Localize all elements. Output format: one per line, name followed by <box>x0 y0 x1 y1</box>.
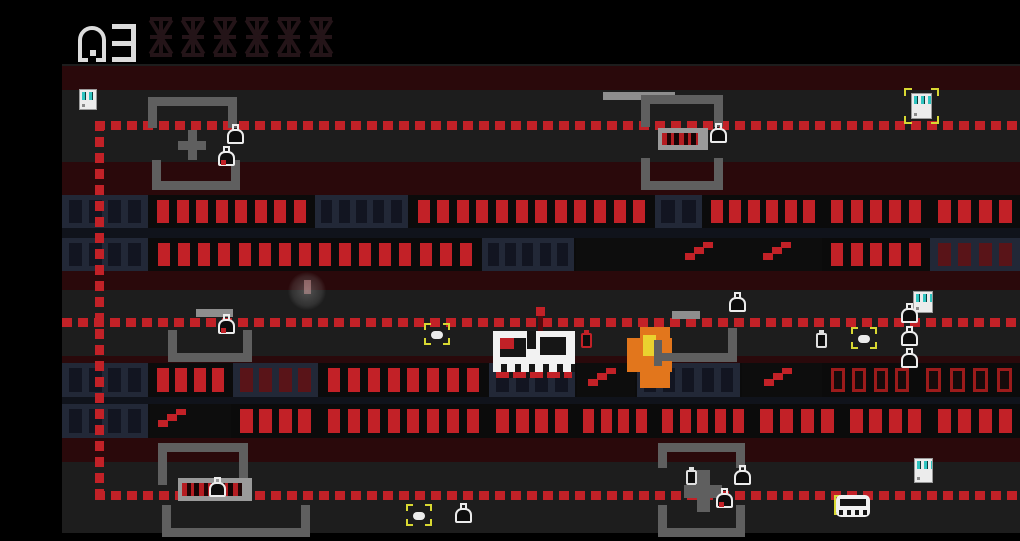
window <box>255 200 267 223</box>
building-segment-outline <box>824 363 916 397</box>
building-segment-lit <box>753 404 841 438</box>
window <box>636 409 647 433</box>
window <box>69 409 82 433</box>
building-segment-unlit <box>62 404 148 438</box>
item-bottle-red <box>581 330 592 348</box>
dashed-border-left <box>95 121 104 500</box>
window <box>851 200 863 223</box>
ghost-figure <box>304 280 311 294</box>
bracket-leg <box>158 443 167 485</box>
window <box>821 409 834 433</box>
bag-body <box>716 493 733 508</box>
stair-steps <box>685 242 713 260</box>
bracket-corner <box>851 327 858 334</box>
window <box>379 243 391 266</box>
window <box>467 368 479 392</box>
window <box>356 200 367 223</box>
window <box>535 409 548 433</box>
ghost-effect <box>288 272 326 310</box>
window <box>766 200 778 223</box>
bag-body <box>901 331 918 346</box>
stair-steps <box>158 409 186 427</box>
bracket-corner <box>870 342 877 349</box>
bracket-leg <box>714 158 723 190</box>
pill-body <box>431 331 443 339</box>
window <box>216 200 228 223</box>
bracket-platform <box>162 505 310 537</box>
bag-body <box>734 470 751 485</box>
window <box>359 243 371 266</box>
fridge-dot <box>82 104 85 107</box>
skull-slot <box>527 331 536 349</box>
item-bag <box>901 303 918 323</box>
bracket-corner <box>931 116 939 124</box>
game-viewport[interactable]: 3 <box>0 0 1020 541</box>
window <box>488 243 499 266</box>
window <box>198 243 210 266</box>
window <box>108 200 121 223</box>
digit-segment <box>112 57 136 62</box>
window <box>391 200 402 223</box>
skull-eye-right <box>540 337 566 355</box>
bracket-corner <box>443 323 450 330</box>
window <box>69 243 82 266</box>
bracket-leg <box>658 443 667 468</box>
window <box>218 243 230 266</box>
bracket-leg <box>152 160 161 190</box>
hud-slot <box>278 17 300 57</box>
window <box>889 200 901 223</box>
window <box>733 409 744 433</box>
window <box>319 243 331 266</box>
window <box>279 243 291 266</box>
window <box>594 200 606 223</box>
window <box>803 200 815 223</box>
window <box>760 409 773 433</box>
item-fridge <box>911 93 932 119</box>
stair-step <box>606 368 616 374</box>
window <box>748 200 760 223</box>
window <box>194 368 206 392</box>
window <box>999 243 1012 266</box>
skull-teeth <box>493 364 575 372</box>
bracket-leg <box>658 505 667 537</box>
item-pill <box>406 504 432 526</box>
window <box>177 200 189 223</box>
window <box>926 368 941 392</box>
building-segment-unlit <box>655 195 702 228</box>
stair-step <box>176 409 186 415</box>
item-bag-red <box>218 314 235 334</box>
window <box>662 409 673 433</box>
player-skull <box>493 331 575 378</box>
item-fridge <box>914 458 933 483</box>
bracket-bar <box>148 97 237 106</box>
building-segment-lit <box>824 195 928 228</box>
window <box>870 200 882 223</box>
bottle-body <box>581 333 592 348</box>
fridge-dot <box>914 113 917 116</box>
window <box>328 368 340 392</box>
window <box>958 409 971 433</box>
window <box>721 368 733 392</box>
stair-step <box>167 414 177 421</box>
ledge-platform <box>672 311 700 319</box>
stair-step <box>158 420 168 427</box>
bracket-corner <box>425 504 432 511</box>
fridge-stripes <box>916 294 932 302</box>
window <box>682 368 694 392</box>
window <box>108 409 121 433</box>
window <box>516 200 528 223</box>
window <box>869 409 882 433</box>
bracket-corner <box>870 327 877 334</box>
building-segment-lit <box>824 238 928 271</box>
building-segment-dim <box>233 363 318 397</box>
bracket-platform <box>641 158 723 190</box>
window <box>801 409 814 433</box>
stair-step <box>773 373 783 380</box>
window <box>440 243 452 266</box>
hud-slot <box>182 17 204 57</box>
window <box>973 368 988 392</box>
window <box>128 409 141 433</box>
window <box>407 409 419 433</box>
building-segment-lit <box>489 404 575 438</box>
item-bag <box>901 348 918 368</box>
building-segment-lit <box>930 404 1020 438</box>
bracket-leg <box>148 97 157 128</box>
hud-slot <box>150 17 172 57</box>
fridge-stripes <box>917 461 932 469</box>
level-digit <box>112 24 136 62</box>
window <box>259 243 271 266</box>
stair-step <box>764 379 774 386</box>
window <box>128 368 141 392</box>
window <box>339 243 351 266</box>
window <box>175 368 187 392</box>
bag-body <box>455 508 472 523</box>
window <box>399 243 411 266</box>
skull-eye-glow <box>500 338 514 349</box>
item-bag-red <box>218 146 235 166</box>
building-segment-lit <box>150 238 480 271</box>
window <box>870 243 882 266</box>
window <box>999 200 1012 223</box>
building-segment-lit <box>577 404 653 438</box>
row-separator-lower <box>62 397 1020 404</box>
window <box>535 200 547 223</box>
building-segment-lit <box>150 195 313 228</box>
projectile-trail <box>538 316 543 332</box>
item-fridge <box>79 89 97 110</box>
stair-step <box>588 379 598 386</box>
row-separator-upper <box>62 228 1020 238</box>
digit-segment <box>112 41 136 46</box>
cross-horizontal <box>178 141 206 150</box>
window <box>259 409 272 433</box>
bag-body <box>218 151 235 166</box>
bag-body <box>729 297 746 312</box>
window <box>555 200 567 223</box>
window <box>418 200 430 223</box>
window <box>321 200 332 223</box>
bracket-platform <box>148 97 237 128</box>
bag-body <box>209 482 226 497</box>
window <box>729 200 741 223</box>
window <box>540 243 551 266</box>
window <box>259 368 272 392</box>
window <box>348 409 360 433</box>
window <box>938 200 951 223</box>
window <box>979 200 992 223</box>
bracket-leg <box>301 505 310 537</box>
bracket-corner <box>851 342 858 349</box>
window <box>388 368 400 392</box>
window <box>618 409 629 433</box>
window <box>368 368 380 392</box>
hud-slot <box>246 17 268 57</box>
item-pill <box>851 327 877 349</box>
projectile <box>536 307 545 316</box>
building-segment-unlit <box>62 363 148 397</box>
bracket-corner <box>443 338 450 345</box>
bracket-corner <box>406 519 413 526</box>
window <box>909 243 921 266</box>
window <box>420 243 432 266</box>
window <box>108 243 121 266</box>
building-segment-lit <box>320 404 487 438</box>
bracket-leg <box>243 330 252 362</box>
bag-body <box>227 129 244 144</box>
window <box>279 409 292 433</box>
window <box>157 200 169 223</box>
window <box>999 409 1012 433</box>
building-segment-unlit <box>482 238 574 271</box>
window <box>212 368 224 392</box>
sign-text <box>662 133 698 145</box>
bracket-platform <box>658 443 745 468</box>
building-segment-lit <box>320 363 487 397</box>
bracket-corner <box>424 323 431 330</box>
window <box>874 368 888 392</box>
pill-body <box>858 335 870 343</box>
window <box>505 243 516 266</box>
window <box>457 200 469 223</box>
window <box>702 368 714 392</box>
bracket-corner <box>931 88 939 96</box>
window <box>274 200 286 223</box>
stair-step <box>763 253 773 260</box>
window <box>69 200 82 223</box>
item-bag <box>455 503 472 523</box>
window <box>339 200 350 223</box>
window <box>950 368 965 392</box>
window <box>328 409 340 433</box>
window <box>240 409 253 433</box>
window <box>938 243 951 266</box>
window <box>997 368 1012 392</box>
window <box>128 200 141 223</box>
window <box>661 200 675 223</box>
item-bag <box>729 292 746 312</box>
flame-pipe <box>654 353 699 361</box>
stair-step <box>597 373 607 380</box>
stair-step <box>782 368 792 374</box>
window <box>178 243 190 266</box>
window <box>682 200 696 223</box>
item-bag <box>710 123 727 143</box>
bracket-corner <box>424 338 431 345</box>
building-segment-lit <box>704 195 822 228</box>
window <box>958 200 971 223</box>
window <box>711 200 723 223</box>
bracket-bar <box>658 528 745 537</box>
window <box>516 409 529 433</box>
maroon-band-3 <box>62 271 1020 290</box>
bracket-bar <box>158 443 248 452</box>
window <box>496 200 508 223</box>
window <box>460 243 472 266</box>
stair-step <box>685 253 695 260</box>
window <box>831 200 843 223</box>
pill-body <box>413 512 425 520</box>
item-bag <box>209 477 226 497</box>
bag-red-dot <box>221 160 226 165</box>
item-bag <box>227 124 244 144</box>
bracket-bar <box>658 443 745 452</box>
window <box>851 243 863 266</box>
window <box>476 200 488 223</box>
stair-step <box>772 247 782 254</box>
window <box>909 200 921 223</box>
car-window <box>840 499 866 506</box>
bracket-bar <box>162 528 310 537</box>
bracket-bar <box>168 353 252 362</box>
window <box>239 243 251 266</box>
skull-chin <box>496 372 572 378</box>
fridge-dot <box>917 477 920 480</box>
window <box>574 200 586 223</box>
building-segment-unlit <box>315 195 408 228</box>
window <box>235 200 247 223</box>
window <box>958 243 971 266</box>
window <box>785 200 797 223</box>
bracket-platform <box>168 330 252 362</box>
window <box>889 243 901 266</box>
item-car <box>834 493 870 518</box>
window <box>388 409 400 433</box>
window <box>633 200 645 223</box>
window <box>908 409 921 433</box>
window <box>294 200 306 223</box>
stair-step <box>703 242 713 248</box>
window <box>601 409 612 433</box>
window <box>447 368 459 392</box>
item-bag <box>734 465 751 485</box>
stair-steps <box>764 368 792 386</box>
bracket-corner <box>406 504 413 511</box>
building-segment-lit <box>410 195 653 228</box>
bag-body <box>218 319 235 334</box>
window <box>240 368 253 392</box>
window <box>850 409 863 433</box>
window <box>614 200 626 223</box>
window <box>368 409 380 433</box>
window <box>196 200 208 223</box>
window <box>496 409 509 433</box>
window <box>108 368 121 392</box>
sign-board <box>658 128 708 150</box>
window <box>69 368 82 392</box>
window <box>407 368 419 392</box>
window <box>780 409 793 433</box>
window <box>680 409 691 433</box>
car-treads <box>839 510 867 515</box>
bag-body <box>901 353 918 368</box>
window <box>522 243 533 266</box>
window <box>279 368 292 392</box>
bracket-leg <box>168 330 177 362</box>
window <box>557 243 568 266</box>
door-notch <box>90 50 96 56</box>
bag-red-dot <box>221 328 226 333</box>
bracket-corner <box>425 519 432 526</box>
window <box>298 368 311 392</box>
window <box>427 409 439 433</box>
hud-slot <box>214 17 236 57</box>
window <box>555 409 568 433</box>
building-segment-unlit <box>62 195 148 228</box>
bag-body <box>710 128 727 143</box>
window <box>373 200 384 223</box>
window <box>437 200 449 223</box>
building-segment-outline <box>918 363 1020 397</box>
cross-platform <box>178 130 206 160</box>
window <box>128 243 141 266</box>
building-segment-lit <box>233 404 318 438</box>
building-segment-dim <box>930 238 1020 271</box>
bracket-bar <box>641 95 723 104</box>
window <box>831 368 845 392</box>
window <box>298 409 311 433</box>
window <box>467 409 479 433</box>
building-segment-lit <box>930 195 1020 228</box>
window <box>583 409 594 433</box>
item-bag-red <box>716 488 733 508</box>
explosion-flame <box>627 327 673 389</box>
bracket-bar <box>641 181 723 190</box>
window <box>938 409 951 433</box>
window <box>427 368 439 392</box>
car-body <box>836 495 870 517</box>
bracket-leg <box>641 95 650 127</box>
item-bag <box>901 326 918 346</box>
window <box>831 243 843 266</box>
door-gap <box>88 56 96 62</box>
stair-steps <box>763 242 791 260</box>
bag-body <box>901 308 918 323</box>
window <box>895 368 909 392</box>
fridge-stripes <box>82 92 96 100</box>
window <box>889 409 902 433</box>
fridge-stripes <box>914 96 931 104</box>
bracket-leg <box>162 505 171 537</box>
window <box>299 243 311 266</box>
window <box>979 409 992 433</box>
window <box>979 243 992 266</box>
item-bottle <box>816 330 827 348</box>
